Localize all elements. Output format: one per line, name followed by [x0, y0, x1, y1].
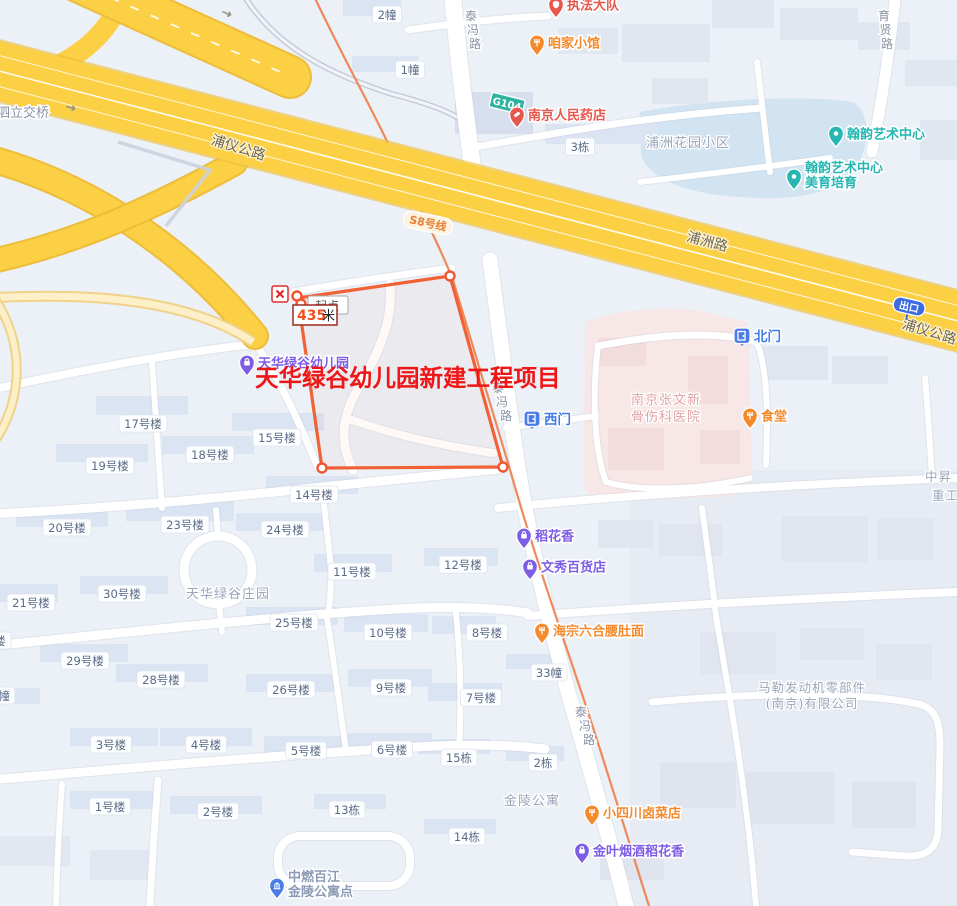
building-label: 号楼	[0, 632, 11, 649]
poi-label: 翰韵艺术中心	[805, 160, 883, 176]
svg-text:3号楼: 3号楼	[96, 738, 127, 752]
building-label: 5号楼	[286, 742, 327, 759]
svg-text:1号楼: 1号楼	[95, 800, 126, 814]
building-label: 23号楼	[161, 516, 209, 533]
poi-label: 南京人民药店	[528, 108, 606, 124]
project-title-label: 天华绿谷幼儿园新建工程项目	[255, 364, 561, 392]
svg-text:米: 米	[322, 309, 335, 324]
building-label: 9号楼	[371, 679, 412, 696]
area-label: 南京张文新	[631, 392, 701, 408]
svg-text:7号楼: 7号楼	[466, 691, 497, 705]
svg-text:24号楼: 24号楼	[266, 523, 304, 537]
svg-text:6号楼: 6号楼	[377, 743, 408, 757]
svg-text:30号楼: 30号楼	[103, 587, 141, 601]
poi-label-line2: 金陵公寓点	[287, 884, 353, 900]
svg-text:号楼: 号楼	[0, 634, 6, 648]
area-label: 天华绿谷庄园	[186, 586, 270, 602]
building-label: 8号楼	[467, 624, 508, 641]
svg-text:15号楼: 15号楼	[258, 431, 296, 445]
building-label: 11号楼	[328, 563, 376, 580]
gate-label: 北门	[754, 328, 781, 345]
svg-text:29号楼: 29号楼	[66, 654, 104, 668]
building-label: 2栋	[529, 754, 558, 771]
poi-label: 食堂	[761, 409, 787, 425]
building-label: 14号楼	[290, 486, 338, 503]
svg-text:11号楼: 11号楼	[333, 565, 371, 579]
svg-text:33幢: 33幢	[536, 666, 563, 680]
svg-text:21号楼: 21号楼	[12, 596, 50, 610]
poi-label: 海宗六合腰肚面	[553, 624, 644, 640]
building-label: 4号楼	[186, 736, 227, 753]
area-label: 中昇	[925, 469, 952, 484]
poi-label: 稻花香	[535, 529, 575, 545]
area-label: 浦洲花园小区	[646, 135, 730, 151]
svg-text:14号楼: 14号楼	[295, 488, 333, 502]
building-label: 29号楼	[61, 652, 109, 669]
building-label: 24号楼	[261, 521, 309, 538]
svg-text:2栋: 2栋	[534, 756, 553, 770]
building-label: 幢	[0, 687, 15, 704]
gate-marker[interactable]: 西门	[524, 411, 571, 429]
building-label: 25号楼	[270, 614, 318, 631]
svg-text:10号楼: 10号楼	[369, 626, 407, 640]
building-label: 19号楼	[86, 457, 134, 474]
building-label: 6号楼	[372, 741, 413, 758]
distance-label: 435 米	[293, 305, 337, 325]
area-label: (南京)有限公司	[766, 696, 859, 711]
poi-label: 中燃百江	[288, 869, 340, 885]
building-label: 12号楼	[439, 556, 487, 573]
svg-text:13栋: 13栋	[334, 803, 361, 817]
polygon-vertex[interactable]	[318, 464, 327, 473]
dot-icon	[792, 174, 797, 179]
poi-label: 翰韵艺术中心	[847, 127, 925, 143]
building-label: 2号楼	[198, 803, 239, 820]
building-label: 10号楼	[364, 624, 412, 641]
svg-text:18号楼: 18号楼	[191, 448, 229, 462]
poi-label: 文秀百货店	[541, 560, 606, 576]
building-label: 26号楼	[267, 681, 315, 698]
building-label: 3号楼	[91, 736, 132, 753]
building-label: 3栋	[566, 138, 595, 155]
map-canvas[interactable]: 起点 435 米 浦洲花园小区天华绿谷庄园金陵公寓马勒发动机零部件(南京)有限公…	[0, 0, 957, 906]
building-label: 30号楼	[98, 585, 146, 602]
svg-text:28号楼: 28号楼	[142, 673, 180, 687]
poi-label-line2: 美育培育	[805, 175, 857, 191]
building-label: 1幢	[396, 61, 425, 78]
svg-text:4号楼: 4号楼	[191, 738, 222, 752]
building-label: 15栋	[441, 749, 477, 766]
svg-text:2号楼: 2号楼	[203, 805, 234, 819]
poi-label: 咱家小馆	[548, 36, 600, 52]
svg-text:23号楼: 23号楼	[166, 518, 204, 532]
svg-text:17号楼: 17号楼	[124, 417, 162, 431]
svg-text:1幢: 1幢	[401, 63, 420, 77]
area-label: 马勒发动机零部件	[758, 680, 866, 695]
poi-label: 执法大队	[567, 0, 620, 14]
svg-text:19号楼: 19号楼	[91, 459, 129, 473]
svg-text:25号楼: 25号楼	[275, 616, 313, 630]
gate-marker[interactable]: 北门	[734, 328, 781, 346]
svg-text:26号楼: 26号楼	[272, 683, 310, 697]
svg-text:幢: 幢	[0, 689, 10, 703]
building-label: 28号楼	[137, 671, 185, 688]
road-label: 浦泗立交桥	[0, 105, 49, 121]
building-label: 14栋	[449, 828, 485, 845]
svg-text:3栋: 3栋	[571, 140, 590, 154]
svg-text:8号楼: 8号楼	[472, 626, 503, 640]
building-label: 21号楼	[7, 594, 55, 611]
svg-text:5号楼: 5号楼	[291, 744, 322, 758]
measurement-close-button[interactable]	[272, 286, 288, 302]
polygon-vertex[interactable]	[499, 463, 508, 472]
poi-label: 小四川卤菜店	[603, 806, 681, 822]
polygon-vertex[interactable]	[446, 272, 455, 281]
building-label: 13栋	[329, 801, 365, 818]
building-label: 20号楼	[43, 519, 91, 536]
area-label: 金陵公寓	[504, 793, 560, 809]
building-label: 7号楼	[461, 689, 502, 706]
svg-text:9号楼: 9号楼	[376, 681, 407, 695]
building-label: 17号楼	[119, 415, 167, 432]
building-label: 2幢	[373, 6, 402, 23]
svg-text:20号楼: 20号楼	[48, 521, 86, 535]
svg-text:14栋: 14栋	[454, 830, 481, 844]
map-viewport[interactable]: 起点 435 米 浦洲花园小区天华绿谷庄园金陵公寓马勒发动机零部件(南京)有限公…	[0, 0, 957, 906]
building-label: 1号楼	[90, 798, 131, 815]
area-label: 骨伤科医院	[631, 410, 701, 425]
svg-text:2幢: 2幢	[378, 8, 397, 22]
poi-label: 金叶烟酒稻花香	[592, 844, 685, 860]
svg-text:12号楼: 12号楼	[444, 558, 482, 572]
building-label: 15号楼	[253, 429, 301, 446]
dot-icon	[834, 131, 839, 136]
svg-text:15栋: 15栋	[446, 751, 473, 765]
area-label: 重工	[932, 488, 957, 503]
building-label: 18号楼	[186, 446, 234, 463]
building-label: 33幢	[531, 664, 567, 681]
gate-label: 西门	[544, 411, 571, 428]
